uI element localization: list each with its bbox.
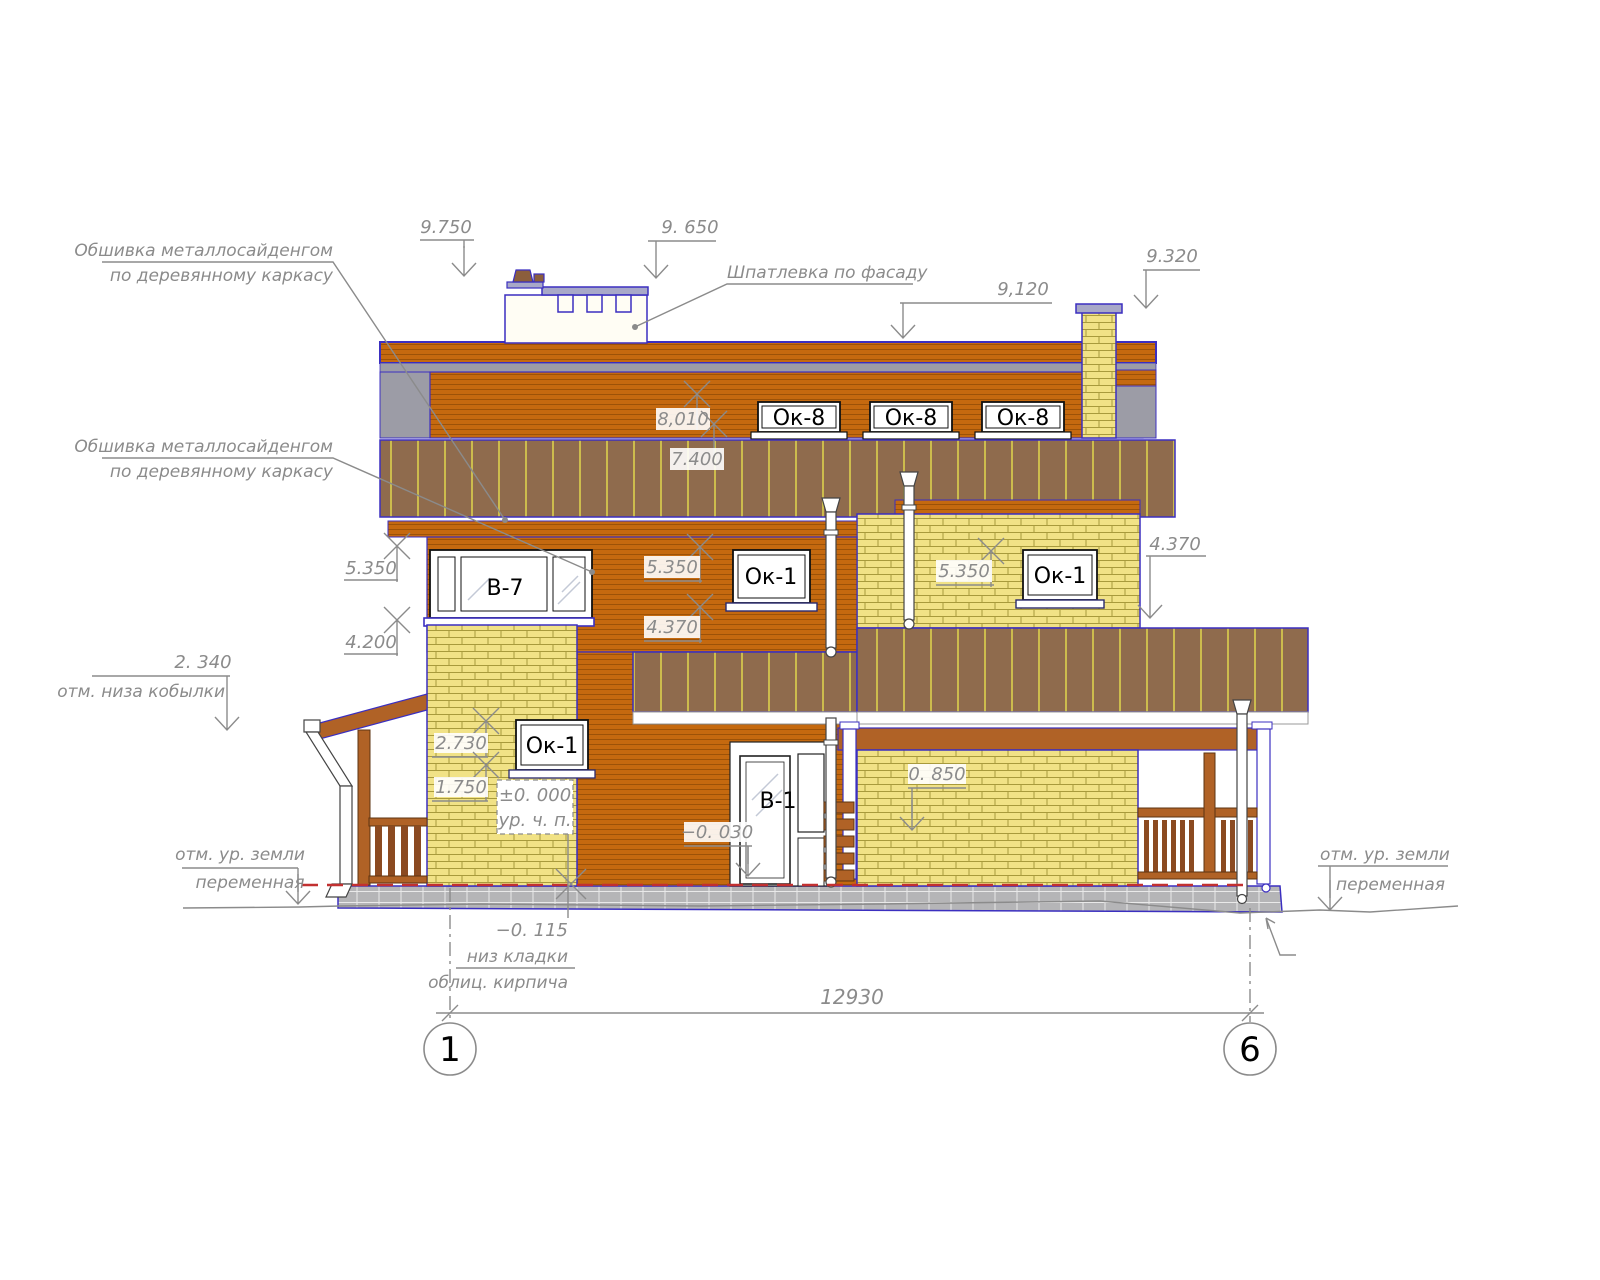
level-0850-value: 0. 850 bbox=[908, 764, 965, 785]
level-2340-value: 2. 340 bbox=[174, 652, 231, 673]
porch bbox=[304, 694, 427, 897]
window-ok1-second-floor-middle: Ок-1 bbox=[726, 550, 817, 611]
attic-left-gray-block bbox=[380, 372, 430, 438]
chimney-cap bbox=[1076, 304, 1122, 313]
level-5350-mid-value: 5.350 bbox=[646, 557, 698, 578]
window-ok8-1-sill bbox=[751, 432, 847, 439]
attic-right-orange-band bbox=[1116, 370, 1156, 386]
roof-fascia bbox=[380, 342, 1156, 363]
window-ok8-2-label: Ок-8 bbox=[885, 406, 938, 431]
level-4200: 4.200 bbox=[344, 607, 410, 656]
level-4200-value: 4.200 bbox=[345, 632, 397, 653]
dimension-total-value: 12930 bbox=[820, 985, 884, 1009]
window-ok1-right-sill bbox=[1016, 600, 1104, 608]
axis-6-number: 6 bbox=[1239, 1030, 1261, 1070]
chimney-block-icon bbox=[513, 270, 533, 282]
porch-roof-beam bbox=[316, 694, 427, 740]
attic-right-gray-block bbox=[1116, 386, 1156, 438]
porch-post bbox=[358, 730, 370, 885]
veranda-post-right-cap bbox=[1252, 722, 1272, 729]
veranda-post-right-base bbox=[1262, 884, 1270, 892]
note-ground-left-line1: отм. ур. земли bbox=[175, 845, 305, 865]
axis-circle-6: 6 bbox=[1224, 1023, 1276, 1075]
railing-post bbox=[1204, 753, 1215, 878]
level-9120: 9,120 bbox=[891, 279, 1052, 338]
note-siding-upper-line1: Обшивка металлосайденгом bbox=[74, 241, 333, 261]
level-8010-value: 8,010 bbox=[657, 409, 709, 430]
balcony-fascia bbox=[633, 712, 857, 724]
window-ok8-3: Ок-8 bbox=[975, 402, 1071, 439]
foundation bbox=[338, 886, 1282, 912]
level-9650: 9. 650 bbox=[644, 217, 719, 278]
window-ok1-mid-sill bbox=[726, 603, 817, 611]
balcony-parapet bbox=[633, 652, 857, 712]
downpipe-balcony-lower bbox=[824, 718, 838, 887]
note-masonry-line2: облиц. кирпича bbox=[428, 973, 568, 993]
level-4370-right-value: 4.370 bbox=[1149, 534, 1201, 555]
axis-1-number: 1 bbox=[439, 1030, 461, 1070]
veranda-post-right bbox=[1257, 729, 1270, 884]
note-kobylka: 2. 340 отм. низа кобылки bbox=[57, 652, 239, 730]
second-floor-right-trim bbox=[895, 500, 1140, 514]
porch-downpipe bbox=[304, 720, 352, 897]
window-ok8-1: Ок-8 bbox=[751, 402, 847, 439]
note-siding-lower-line2: по деревянному каркасу bbox=[110, 462, 334, 482]
note-ground-right-line2: переменная bbox=[1336, 875, 1445, 895]
level-7400-value: 7.400 bbox=[671, 449, 723, 470]
facade-drawing: Ок-8 Ок-8 Ок-8 В-7 Ок-1 bbox=[0, 0, 1600, 1280]
note-siding-upper-line2: по деревянному каркасу bbox=[110, 266, 334, 286]
roof-parapet-structure bbox=[505, 270, 648, 343]
level-5350-left-value: 5.350 bbox=[345, 558, 397, 579]
window-ok8-3-sill bbox=[975, 432, 1071, 439]
leader-dot-icon bbox=[632, 324, 638, 330]
window-ok1-mid-label: Ок-1 bbox=[745, 565, 798, 590]
note-ground-right-line1: отм. ур. земли bbox=[1320, 845, 1450, 865]
level-9320: 9.320 bbox=[1134, 246, 1200, 308]
level-9750-value: 9.750 bbox=[420, 217, 472, 238]
note-siding-lower-line1: Обшивка металлосайденгом bbox=[74, 437, 333, 457]
facade-elevation-sheet: Ок-8 Ок-8 Ок-8 В-7 Ок-1 bbox=[0, 0, 1600, 1280]
note-putty: Шпатлевка по фасаду bbox=[632, 263, 928, 330]
level-5350-right-value: 5.350 bbox=[938, 561, 990, 582]
level-zero-value: ±0. 000 bbox=[499, 785, 571, 806]
level-minus115-value: −0. 115 bbox=[496, 920, 568, 941]
window-ok8-2-sill bbox=[863, 432, 959, 439]
door-b1: В-1 bbox=[730, 742, 828, 886]
level-9320-value: 9.320 bbox=[1146, 246, 1198, 267]
level-2730-value: 2.730 bbox=[435, 733, 487, 754]
level-1750-value: 1.750 bbox=[435, 777, 487, 798]
level-zero-label: ур. ч. п. bbox=[497, 810, 571, 831]
leader-dot-icon bbox=[502, 517, 508, 523]
note-kobylka-label: отм. низа кобылки bbox=[57, 682, 225, 702]
note-putty-label: Шпатлевка по фасаду bbox=[727, 263, 928, 283]
foundation-corner-leader bbox=[1266, 918, 1296, 955]
window-ok1-right-label: Ок-1 bbox=[1034, 564, 1087, 589]
leader-dot-icon bbox=[589, 569, 595, 575]
note-ground-left-line2: переменная bbox=[196, 873, 305, 893]
second-floor-trim-band bbox=[388, 521, 857, 537]
window-ok8-3-label: Ок-8 bbox=[997, 406, 1050, 431]
veranda-beam bbox=[838, 728, 1268, 750]
note-ground-right: отм. ур. земли переменная bbox=[1318, 845, 1450, 910]
window-ok8-2: Ок-8 bbox=[863, 402, 959, 439]
level-9750: 9.750 bbox=[420, 217, 476, 276]
level-minus030-value: −0. 030 bbox=[681, 822, 753, 843]
note-ground-left: отм. ур. земли переменная bbox=[175, 845, 310, 904]
window-ok1-1f-sill bbox=[509, 770, 595, 778]
level-4370-right: 4.370 bbox=[1138, 534, 1206, 618]
axis-circle-1: 1 bbox=[424, 1023, 476, 1075]
window-ok1-second-floor-right: Ок-1 bbox=[1016, 550, 1104, 608]
window-ok1-first-floor: Ок-1 bbox=[509, 720, 595, 778]
window-ok1-1f-label: Ок-1 bbox=[526, 734, 579, 759]
level-4370-mid-value: 4.370 bbox=[646, 617, 698, 638]
note-masonry-line1: низ кладки bbox=[467, 947, 568, 967]
chimney bbox=[1082, 312, 1116, 438]
balcony-window-b7-label: В-7 bbox=[486, 576, 523, 601]
veranda-brick-wall bbox=[857, 750, 1138, 886]
level-5350-left: 5.350 bbox=[344, 533, 410, 582]
window-ok8-1-label: Ок-8 bbox=[773, 406, 826, 431]
level-9650-value: 9. 650 bbox=[661, 217, 718, 238]
level-9120-value: 9,120 bbox=[997, 279, 1049, 300]
veranda-post-left-cap bbox=[840, 722, 859, 729]
door-b1-label: В-1 bbox=[759, 789, 796, 814]
